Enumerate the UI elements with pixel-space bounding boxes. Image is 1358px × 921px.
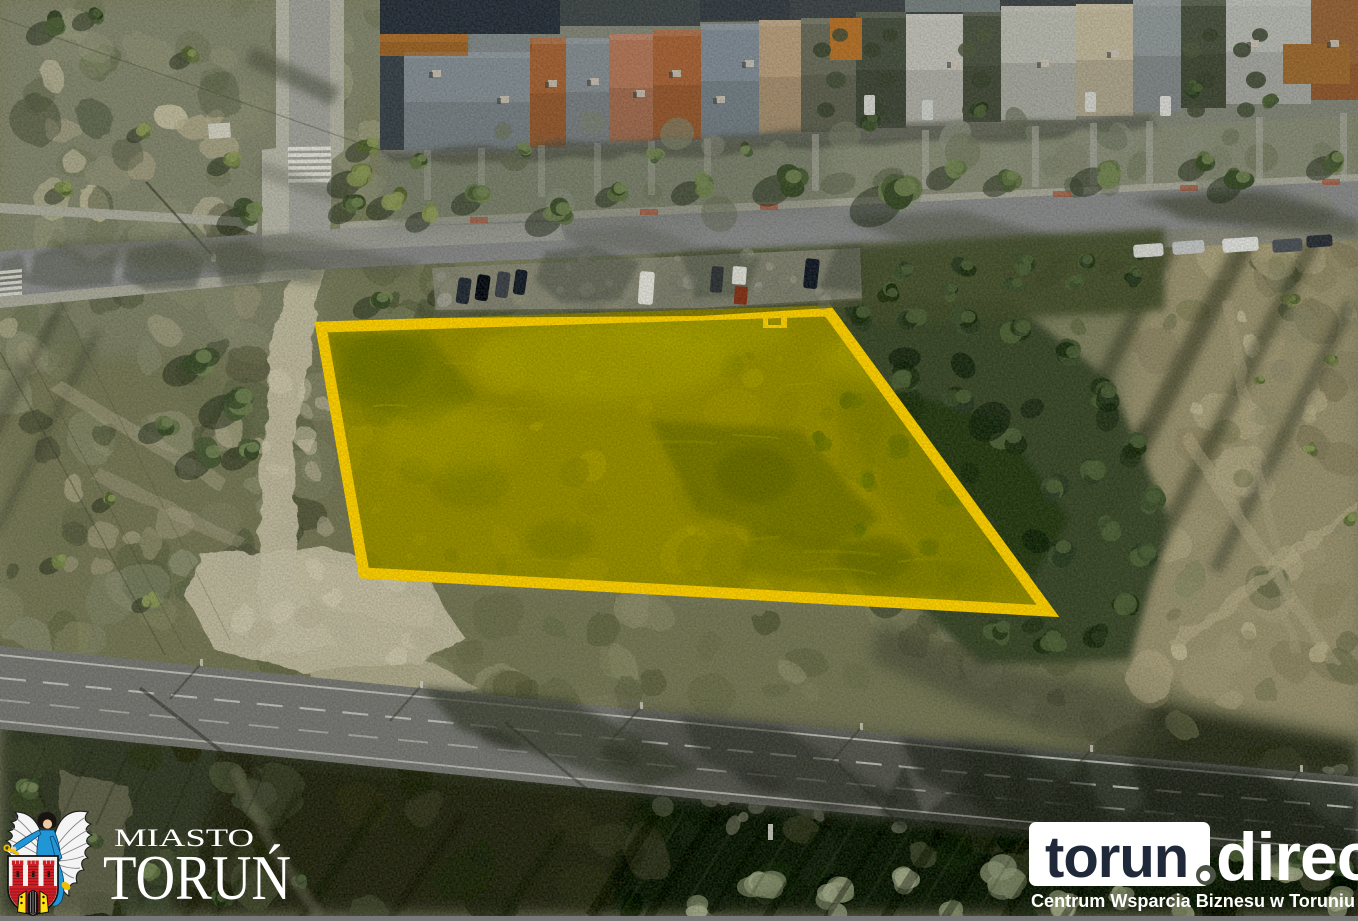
- svg-text:direct: direct: [1216, 819, 1358, 895]
- svg-text:Centrum Wsparcia Biznesu w Tor: Centrum Wsparcia Biznesu w Toruniu: [1031, 891, 1355, 911]
- svg-text:TORUŃ: TORUŃ: [103, 843, 291, 913]
- svg-text:torun: torun: [1045, 825, 1188, 890]
